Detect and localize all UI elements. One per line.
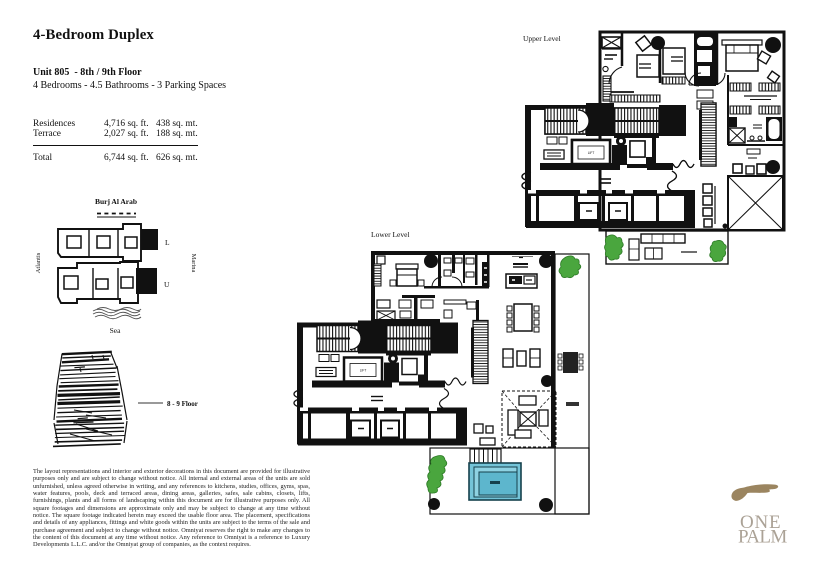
svg-text:PALM: PALM bbox=[738, 527, 787, 548]
svg-text:L: L bbox=[165, 238, 170, 247]
svg-text:Sea: Sea bbox=[110, 326, 122, 335]
svg-text:Atlantis: Atlantis bbox=[35, 252, 42, 273]
svg-text:Marina: Marina bbox=[190, 254, 197, 273]
svg-text:8 - 9 Floor: 8 - 9 Floor bbox=[167, 400, 198, 408]
svg-text:Burj Al Arab: Burj Al Arab bbox=[95, 197, 137, 206]
svg-text:U: U bbox=[164, 280, 170, 289]
